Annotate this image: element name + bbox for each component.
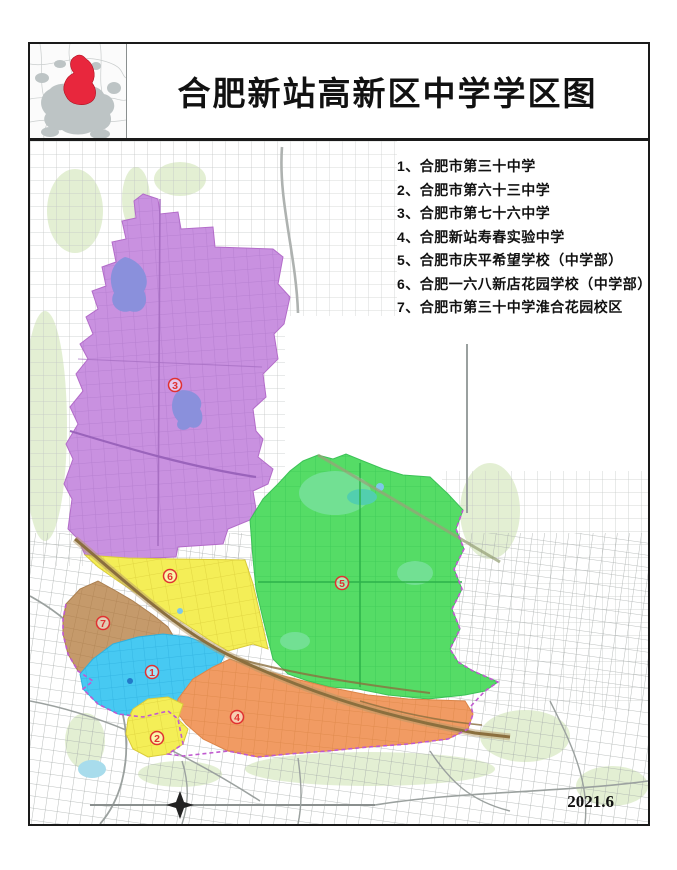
legend-item-4: 4、合肥新站寿春实验中学 [397,226,652,250]
pond [78,760,106,778]
page-title: 合肥新站高新区中学学区图 [178,67,598,115]
legend-item-3: 3、合肥市第七十六中学 [397,202,652,226]
svg-text:1: 1 [149,667,155,679]
marker-4: 4 [231,711,244,725]
svg-text:7: 7 [100,618,106,630]
svg-text:5: 5 [339,578,345,590]
marker-1: 1 [146,666,159,680]
map-date: 2021.6 [567,792,614,812]
map-frame: 合肥新站高新区中学学区图 [28,42,650,826]
poster-page: 合肥新站高新区中学学区图 [0,0,677,870]
title-bar: 合肥新站高新区中学学区图 [30,44,648,141]
marker-2: 2 [151,732,164,746]
svg-text:4: 4 [234,712,240,724]
svg-text:2: 2 [154,733,160,745]
legend-item-6: 6、合肥一六八新店花园学校（中学部） [397,273,652,297]
legend-item-1: 1、合肥市第三十中学 [397,155,652,179]
svg-text:3: 3 [172,380,178,392]
district-map-area: 1 2 3 4 5 [30,141,648,824]
inset-locator-map [30,44,127,138]
legend: 1、合肥市第三十中学 2、合肥市第六十三中学 3、合肥市第七十六中学 4、合肥新… [397,155,652,320]
legend-item-5: 5、合肥市庆平希望学校（中学部） [397,249,652,273]
marker-6: 6 [164,570,177,584]
marker-5: 5 [336,577,349,591]
legend-item-7: 7、合肥市第三十中学淮合花园校区 [397,296,652,320]
inset-city-map [30,44,126,138]
marker-7: 7 [97,617,110,631]
legend-item-2: 2、合肥市第六十三中学 [397,179,652,203]
svg-text:6: 6 [167,571,173,583]
title-box: 合肥新站高新区中学学区图 [127,44,648,138]
marker-3: 3 [169,379,182,393]
